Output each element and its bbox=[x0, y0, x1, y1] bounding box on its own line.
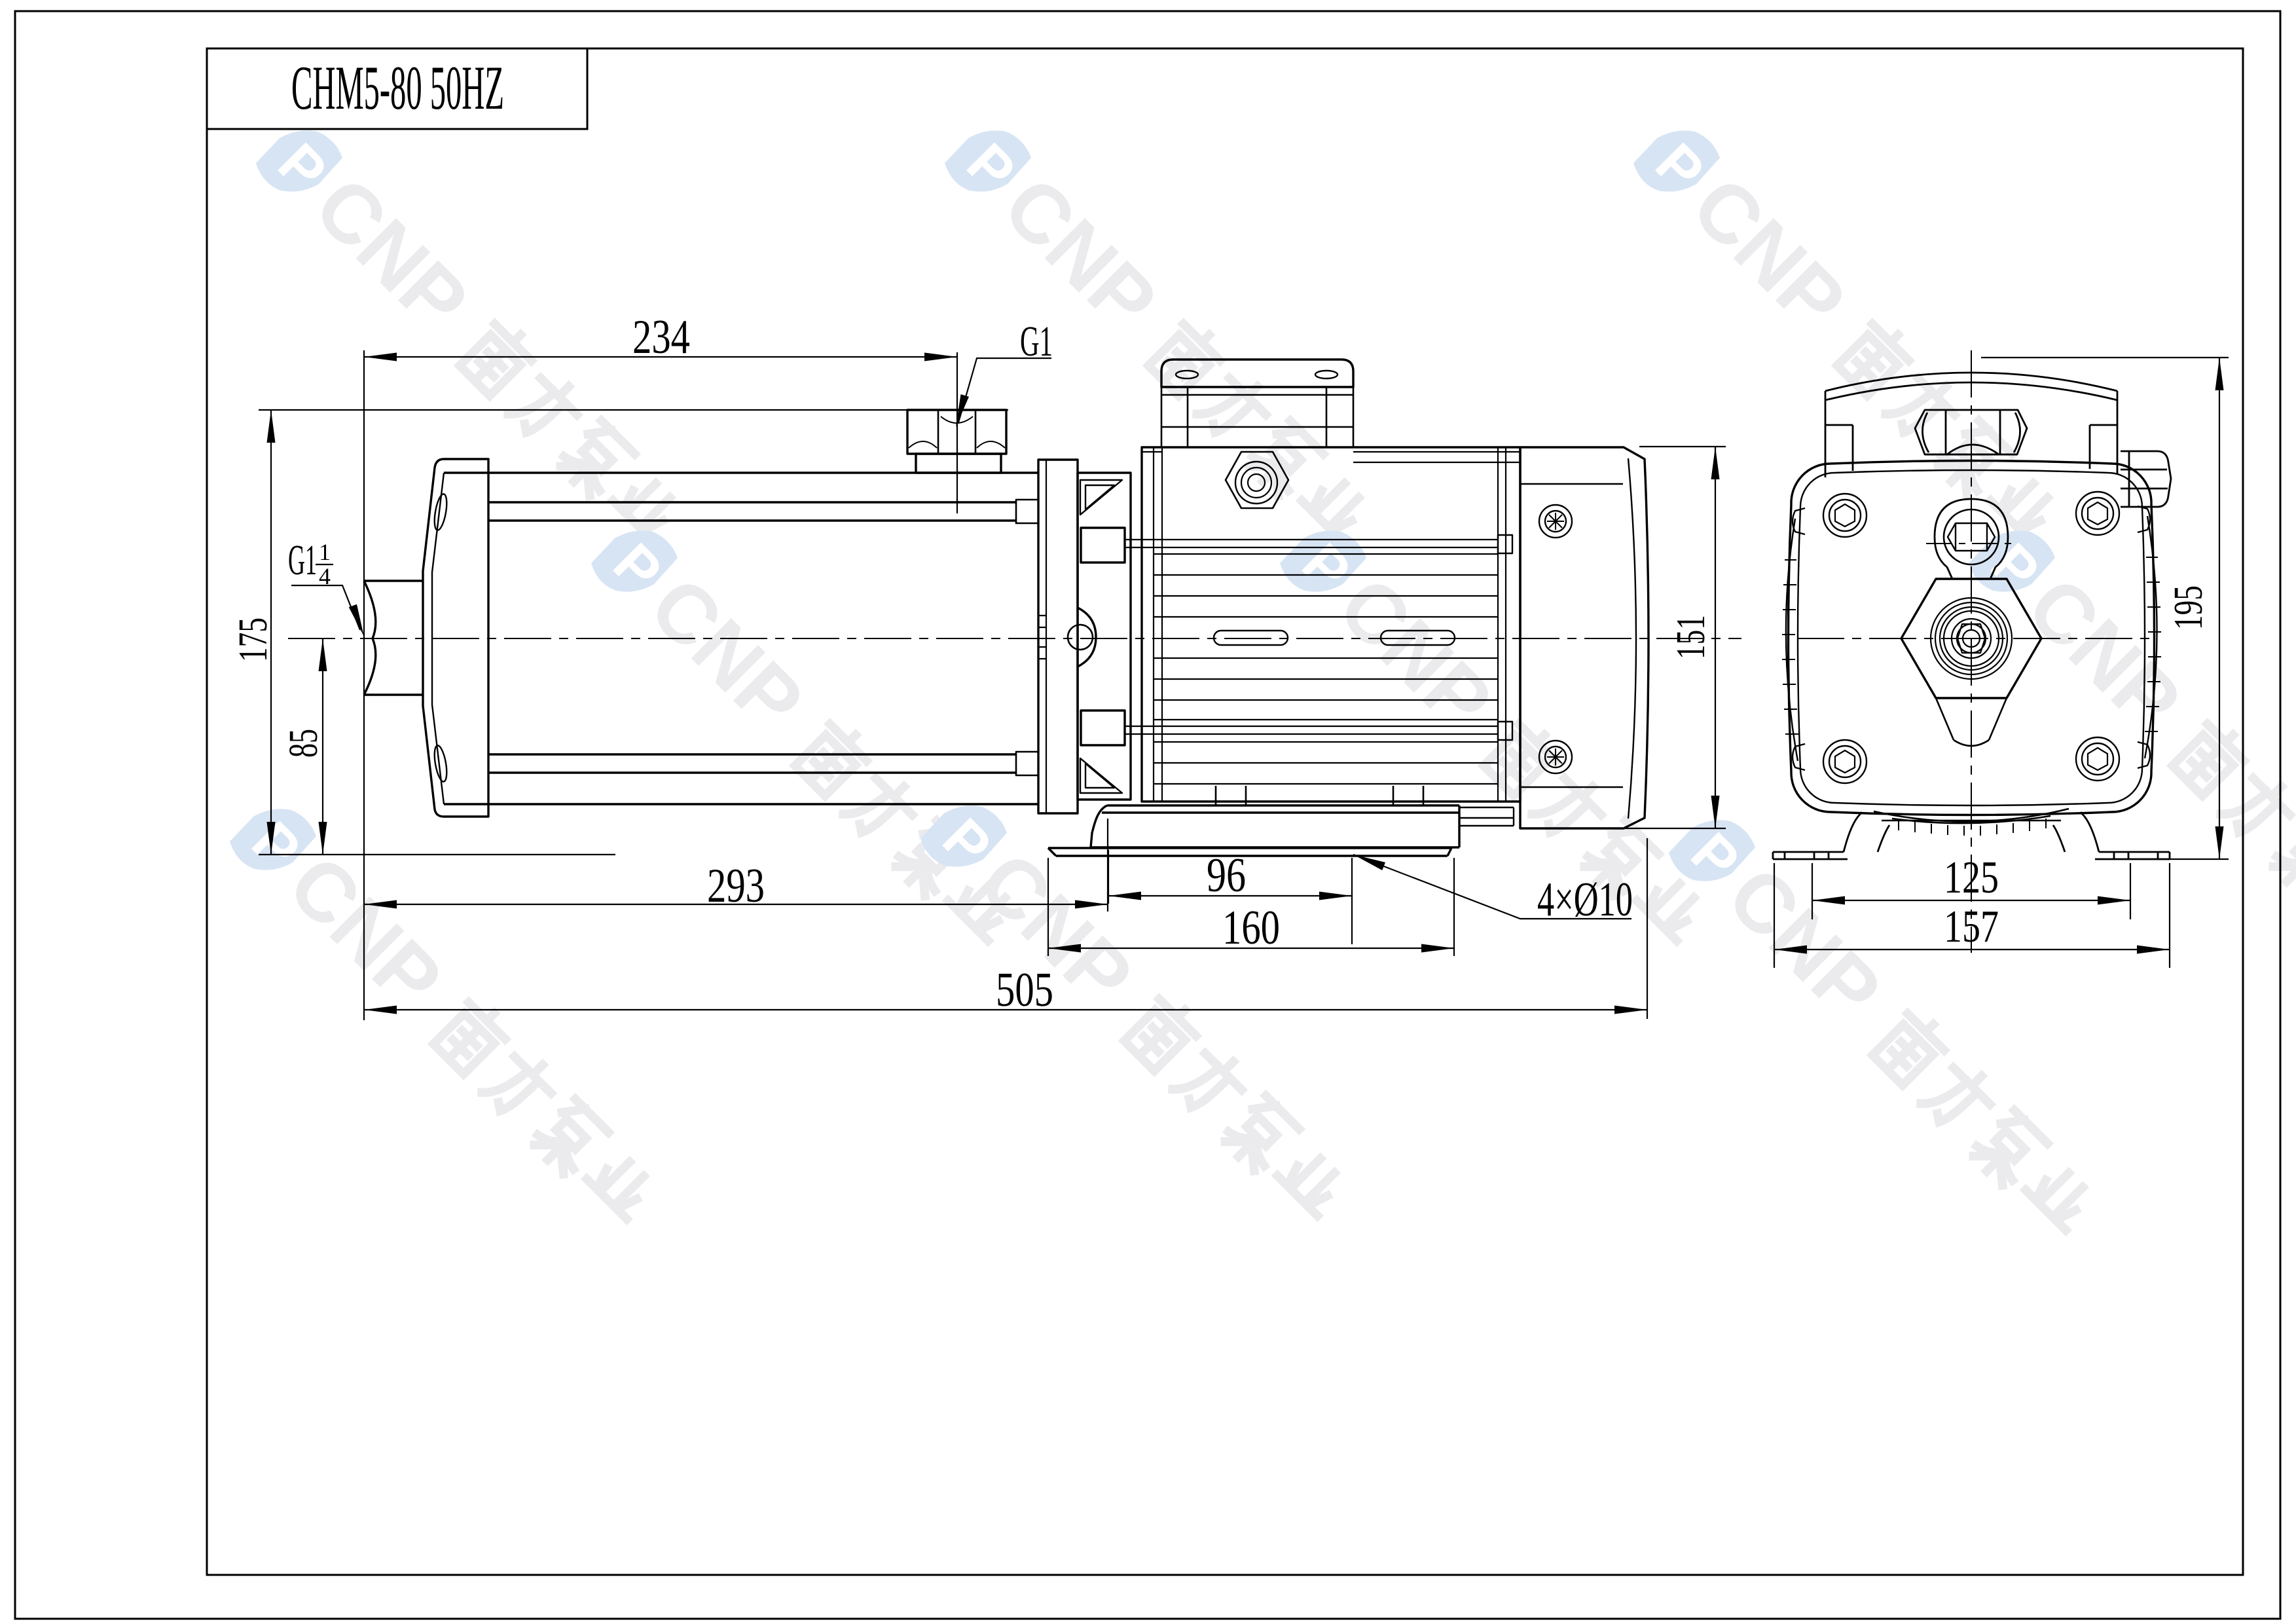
svg-text:293: 293 bbox=[707, 859, 765, 913]
svg-text:160: 160 bbox=[1222, 901, 1280, 955]
svg-text:CHM5-80 50HZ: CHM5-80 50HZ bbox=[291, 53, 504, 122]
svg-text:4: 4 bbox=[319, 563, 331, 589]
svg-text:125: 125 bbox=[1944, 853, 1999, 903]
svg-text:G1: G1 bbox=[1020, 318, 1053, 365]
svg-text:96: 96 bbox=[1207, 849, 1246, 902]
svg-text:1: 1 bbox=[319, 539, 331, 565]
svg-text:4×Ø10: 4×Ø10 bbox=[1537, 873, 1633, 927]
svg-text:175: 175 bbox=[231, 618, 276, 662]
svg-text:505: 505 bbox=[996, 963, 1053, 1017]
svg-text:G1: G1 bbox=[288, 536, 317, 584]
svg-text:85: 85 bbox=[282, 729, 326, 758]
svg-text:195: 195 bbox=[2166, 585, 2211, 630]
svg-text:234: 234 bbox=[632, 310, 690, 364]
svg-text:151: 151 bbox=[1669, 615, 1713, 659]
svg-text:157: 157 bbox=[1944, 902, 1999, 952]
